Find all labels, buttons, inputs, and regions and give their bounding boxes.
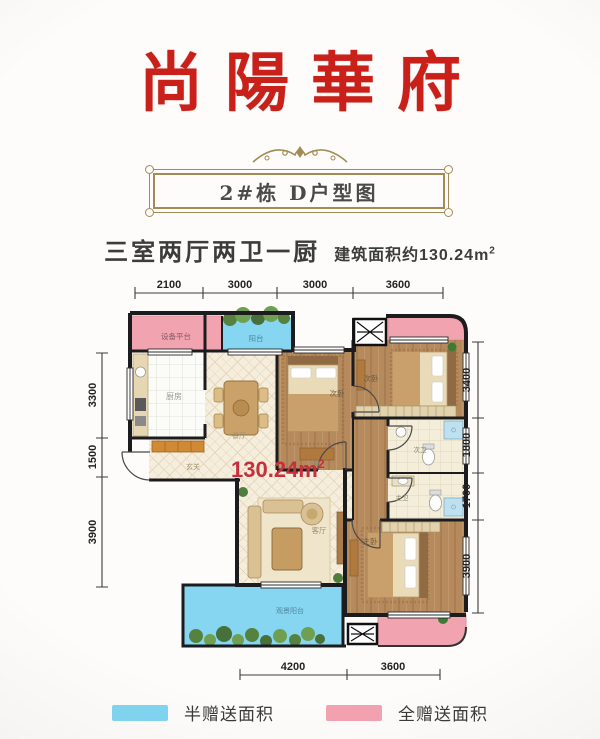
area-sup: 2	[489, 246, 496, 257]
floor-plan: 设备平台 阳台 厨房 餐厅 玄关 过道 客厅 次卧 次卧 主卧 次卫 主卫 观景…	[85, 270, 525, 680]
label-dining: 餐厅	[232, 431, 246, 440]
legend-swatch-pink	[326, 705, 382, 721]
unit-banner-frame: 2#栋 D户型图	[149, 169, 449, 213]
legend-label-half-gift: 半赠送面积	[184, 700, 274, 725]
dim-right-2: 1800	[461, 433, 473, 457]
frame-corner-icon	[444, 165, 453, 174]
plant-icon	[448, 343, 457, 352]
frame-corner-icon	[145, 165, 154, 174]
flue-shaft-icon	[354, 319, 386, 345]
dim-bottom-2: 3600	[381, 661, 405, 673]
dim-top-3: 3000	[303, 279, 327, 291]
half-gift-swatch	[112, 705, 168, 721]
legend-item-full-gift: 全赠送面积	[326, 700, 488, 725]
dim-left-1: 3300	[87, 383, 99, 407]
flue-shaft-icon	[348, 624, 377, 644]
entry-door-icon	[122, 452, 150, 480]
legend-item-half-gift: 半赠送面积	[112, 700, 274, 725]
page-title: 尚陽華府	[0, 52, 600, 116]
label-master: 主卧	[363, 536, 378, 546]
label-equipment-platform: 设备平台	[161, 331, 191, 341]
label-bath-master: 主卫	[396, 493, 410, 502]
unit-banner-inner: 2#栋 D户型图	[153, 173, 445, 209]
frame-corner-icon	[444, 208, 453, 217]
legend: 半赠送面积 全赠送面积	[0, 700, 600, 725]
legend-swatch-blue	[112, 705, 168, 721]
label-bath-second: 次卫	[414, 445, 428, 454]
layout-text: 三室两厅两卫一厨	[104, 232, 320, 267]
summary-row: 三室两厅两卫一厨 建筑面积约130.24m2	[0, 232, 600, 267]
crown-flourish-icon	[245, 142, 355, 166]
legend-label-full-gift: 全赠送面积	[398, 700, 488, 725]
label-balcony-top: 阳台	[249, 333, 264, 343]
dim-right-1: 3400	[461, 368, 473, 392]
kitchen-counter-icon	[133, 354, 148, 436]
room-balcony-bottom-right	[378, 615, 466, 646]
room-balcony-top-right	[388, 315, 466, 340]
label-bedroom-right: 次卧	[364, 373, 379, 383]
plan-area-value: 130.24m	[231, 457, 318, 482]
room-closet-hall	[353, 418, 388, 520]
dim-right-3: 1700	[461, 484, 473, 508]
plan-area-sup: 2	[318, 457, 325, 471]
full-gift-swatch	[326, 705, 382, 721]
label-living: 客厅	[312, 525, 327, 535]
label-kitchen: 厨房	[166, 391, 182, 401]
dim-top-2: 3000	[228, 279, 252, 291]
dim-right-4: 3900	[461, 554, 473, 578]
area-value: 建筑面积约130.24m	[334, 247, 489, 264]
dim-left-3: 3900	[87, 520, 99, 544]
area-text: 建筑面积约130.24m2	[334, 241, 496, 265]
label-entry: 玄关	[186, 462, 200, 471]
shoe-cabinet-icon	[152, 441, 204, 452]
dim-left-2: 1500	[87, 445, 99, 469]
unit-banner-label: 2#栋 D户型图	[220, 177, 379, 206]
dim-bottom-1: 4200	[281, 661, 305, 673]
label-balcony-view: 观景阳台	[276, 606, 304, 615]
plan-area-callout: 130.24m2	[231, 457, 325, 482]
frame-corner-icon	[145, 208, 154, 217]
flyer-page: 尚陽華府 2#栋 D户型图 三室两厅两卫一厨 建筑面积约130.24m2	[0, 0, 600, 739]
dim-top-4: 3600	[386, 279, 410, 291]
dim-top-1: 2100	[157, 279, 181, 291]
label-bedroom-mid: 次卧	[330, 388, 345, 398]
